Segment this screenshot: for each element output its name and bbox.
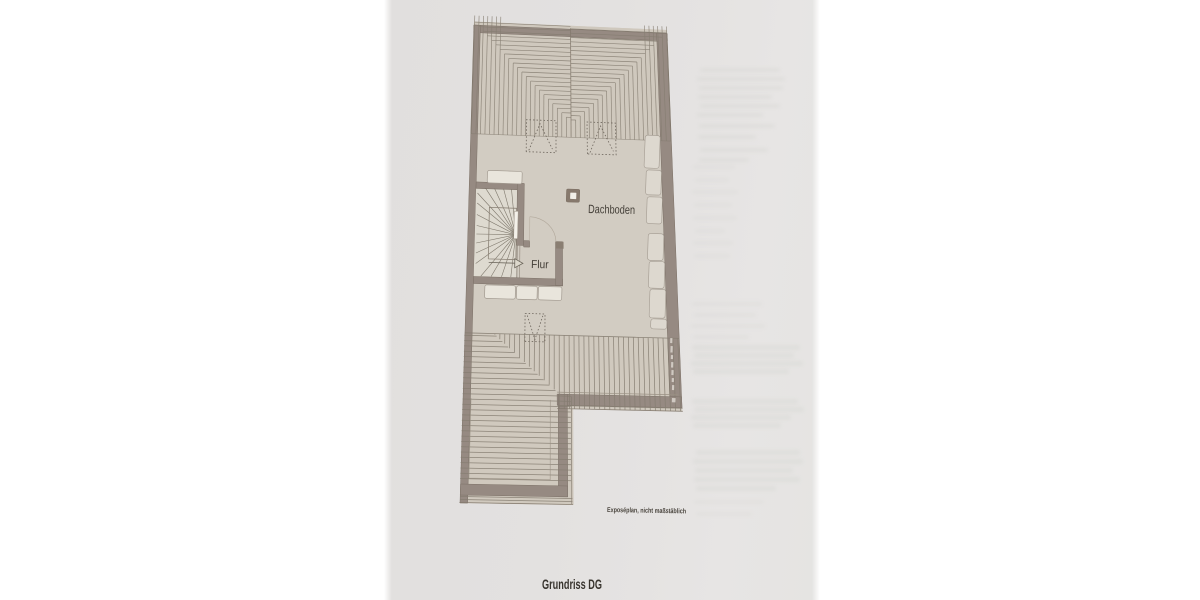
svg-text:Dachboden: Dachboden — [588, 202, 635, 217]
svg-text:Flur: Flur — [531, 259, 549, 271]
svg-text:Grundriss DG: Grundriss DG — [542, 577, 602, 592]
svg-text:Exposéplan, nicht maßstäblich: Exposéplan, nicht maßstäblich — [607, 507, 686, 515]
